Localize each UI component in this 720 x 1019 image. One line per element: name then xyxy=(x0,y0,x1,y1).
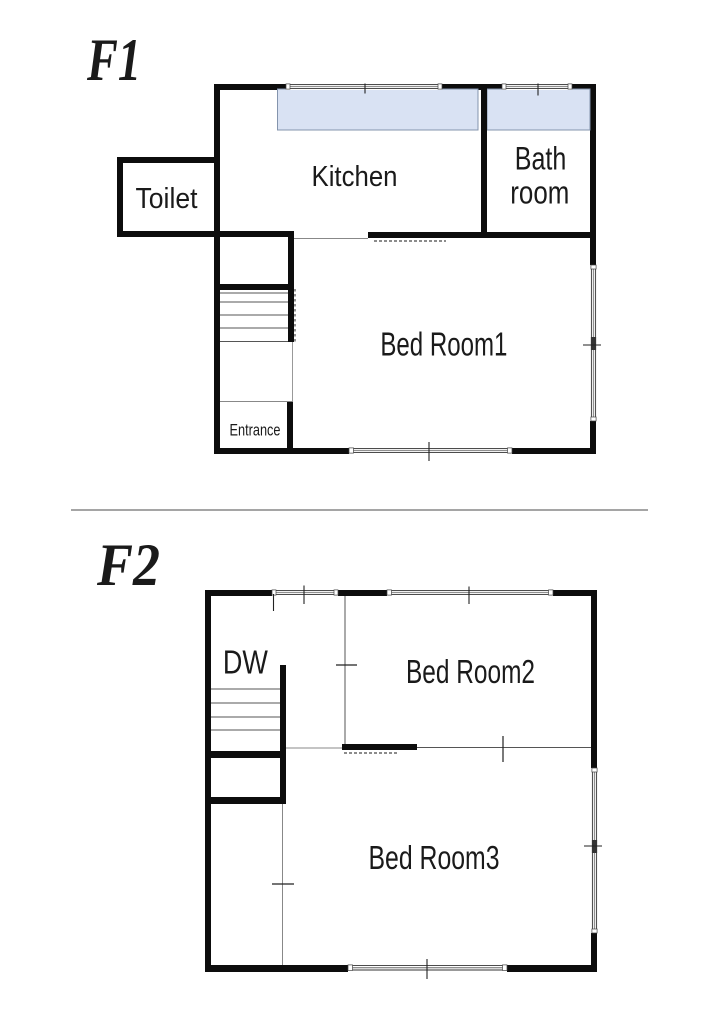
svg-text:Bath: Bath xyxy=(515,140,567,177)
svg-text:Bed Room2: Bed Room2 xyxy=(406,654,535,691)
svg-text:Bed Room3: Bed Room3 xyxy=(369,840,500,877)
svg-text:DW: DW xyxy=(223,644,268,681)
svg-text:Toilet: Toilet xyxy=(136,182,198,214)
svg-text:F1: F1 xyxy=(86,27,141,93)
svg-text:Entrance: Entrance xyxy=(230,420,281,439)
svg-text:Bed Room1: Bed Room1 xyxy=(380,327,507,364)
svg-text:F2: F2 xyxy=(96,532,160,598)
svg-text:Kitchen: Kitchen xyxy=(312,161,398,193)
svg-text:room: room xyxy=(510,174,569,211)
